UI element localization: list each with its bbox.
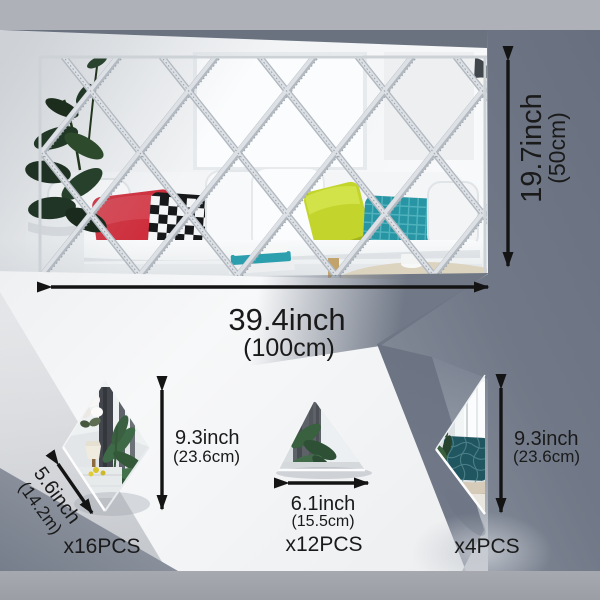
- svg-text:6.1inch: 6.1inch: [291, 493, 356, 515]
- svg-text:(50cm): (50cm): [544, 112, 570, 184]
- svg-text:x4PCS: x4PCS: [454, 535, 519, 558]
- svg-text:(23.6cm): (23.6cm): [513, 447, 580, 466]
- svg-text:(100cm): (100cm): [243, 334, 335, 362]
- svg-text:(23.6cm): (23.6cm): [173, 447, 240, 466]
- svg-text:39.4inch: 39.4inch: [228, 302, 345, 337]
- svg-text:x16PCS: x16PCS: [63, 535, 140, 558]
- svg-text:x12PCS: x12PCS: [285, 533, 362, 556]
- svg-text:9.3inch: 9.3inch: [175, 427, 240, 449]
- svg-text:(15.5cm): (15.5cm): [291, 513, 354, 530]
